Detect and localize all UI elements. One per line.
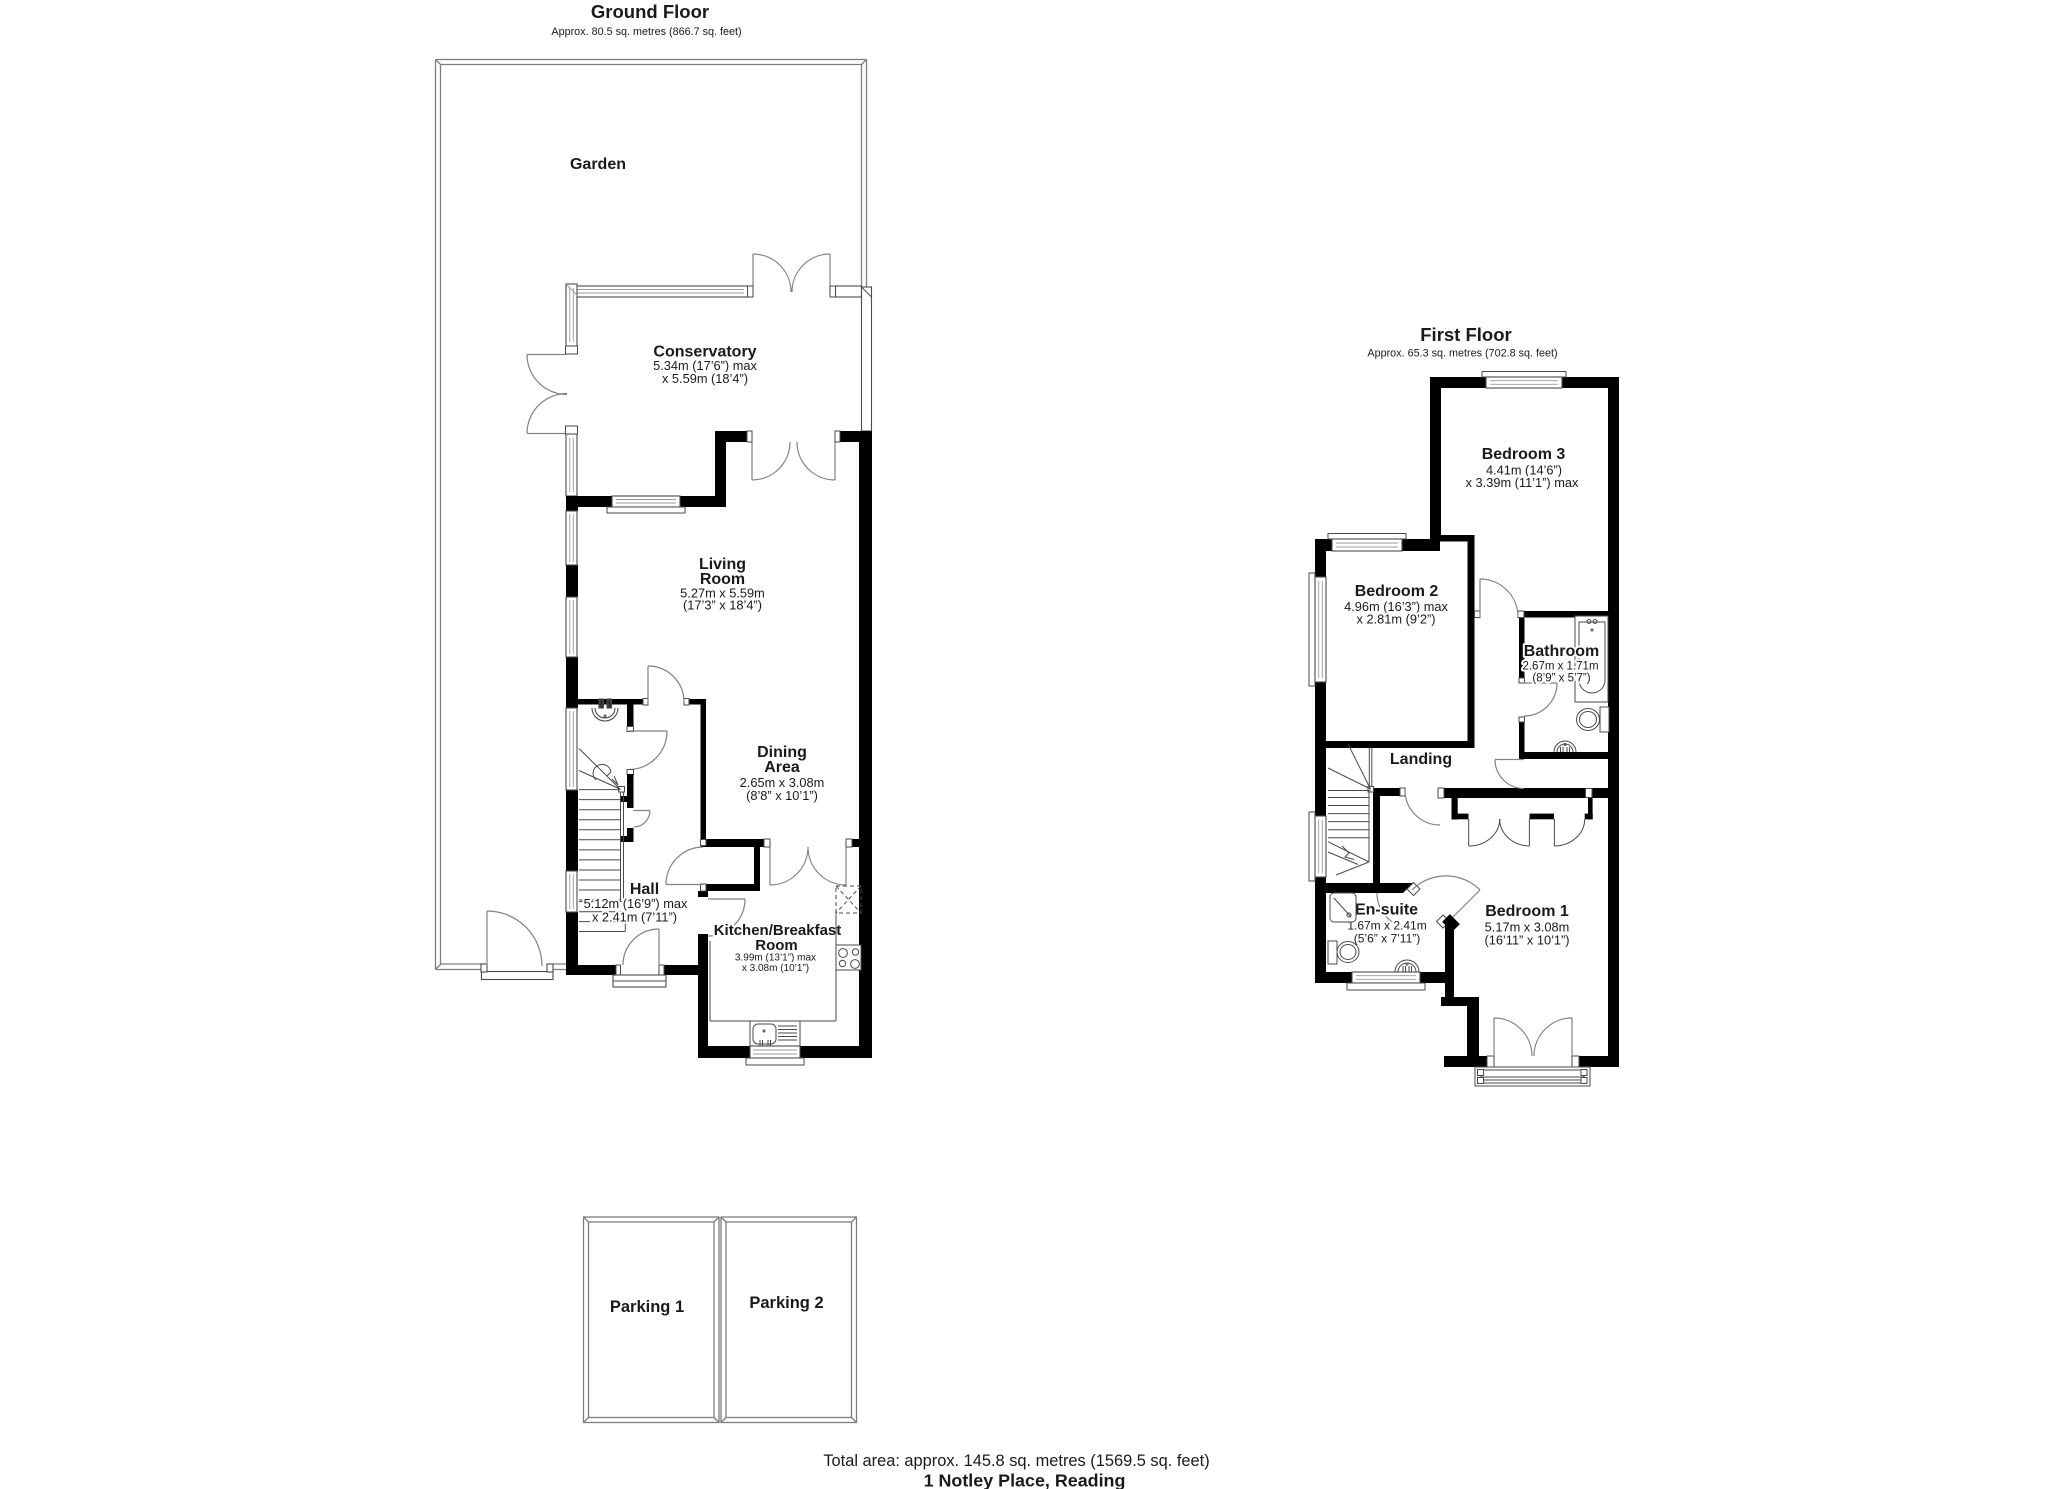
svg-text:En-suite: En-suite: [1355, 902, 1418, 919]
svg-text:Garden: Garden: [570, 156, 626, 173]
svg-text:(8’8” x 10’1”): (8’8” x 10’1”): [746, 788, 818, 803]
svg-text:Bathroom: Bathroom: [1524, 643, 1600, 660]
svg-text:Landing: Landing: [1390, 751, 1452, 768]
svg-text:Area: Area: [764, 759, 800, 776]
svg-text:1 Notley Place, Reading: 1 Notley Place, Reading: [924, 1471, 1126, 1489]
svg-text:(16’11” x 10’1”): (16’11” x 10’1”): [1484, 933, 1569, 948]
svg-text:x 3.39m (11’1”) max: x 3.39m (11’1”) max: [1466, 475, 1579, 490]
svg-text:x 2.81m (9’2”): x 2.81m (9’2”): [1357, 612, 1436, 627]
svg-text:x 5.59m (18’4”): x 5.59m (18’4”): [662, 371, 748, 386]
svg-text:x 3.08m (10’1”): x 3.08m (10’1”): [742, 963, 809, 974]
svg-text:First Floor: First Floor: [1420, 324, 1511, 345]
svg-text:Approx. 80.5 sq. metres (866.7: Approx. 80.5 sq. metres (866.7 sq. feet): [551, 26, 741, 38]
svg-text:Parking 2: Parking 2: [749, 1294, 823, 1312]
svg-text:Bedroom 1: Bedroom 1: [1485, 903, 1569, 920]
svg-text:1.67m x 2.41m: 1.67m x 2.41m: [1347, 919, 1426, 933]
svg-text:Total area: approx. 145.8 sq.: Total area: approx. 145.8 sq. metres (15…: [823, 1452, 1209, 1470]
svg-text:3.99m (13’1”) max: 3.99m (13’1”) max: [735, 953, 816, 964]
svg-text:Ground Floor: Ground Floor: [591, 1, 709, 22]
svg-text:Bedroom 2: Bedroom 2: [1355, 583, 1439, 600]
svg-text:Approx. 65.3 sq. metres (702.8: Approx. 65.3 sq. metres (702.8 sq. feet): [1367, 348, 1557, 360]
svg-text:x 2.41m (7’11”): x 2.41m (7’11”): [592, 910, 677, 925]
svg-text:(17’3” x 18’4”): (17’3” x 18’4”): [683, 598, 762, 613]
svg-text:Parking 1: Parking 1: [610, 1298, 684, 1316]
svg-text:Bedroom 3: Bedroom 3: [1482, 446, 1566, 463]
svg-text:(8’9” x 5’7”): (8’9” x 5’7”): [1532, 673, 1590, 685]
svg-text:(5’6” x 7’11”): (5’6” x 7’11”): [1354, 932, 1420, 946]
svg-text:2.67m x 1.71m: 2.67m x 1.71m: [1522, 661, 1598, 673]
svg-text:Room: Room: [755, 937, 798, 954]
